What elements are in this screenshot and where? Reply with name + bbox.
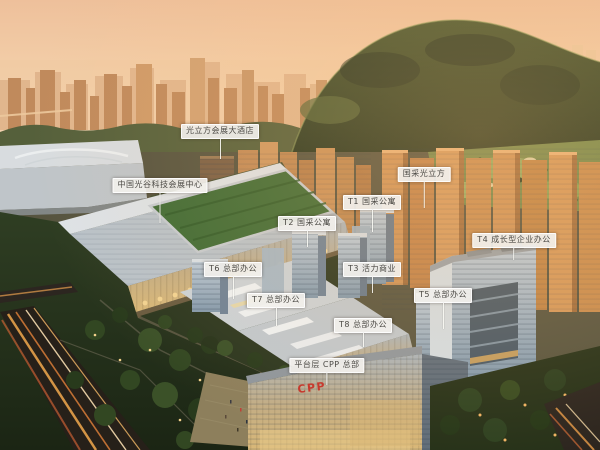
callout-hotel-line [220,139,221,159]
callout-t8: T8 总部办公 [334,318,392,347]
callout-project-name: 国采光立方 [398,167,451,208]
callout-t1-line [372,210,373,232]
callout-platform-cpp-label: 平台层 CPP 总部 [289,358,364,373]
callout-t6-line [233,277,234,299]
callout-project-name-label: 国采光立方 [398,167,451,182]
callout-t4-line [514,248,515,260]
aerial-rendering-page: CPP 光立方会展大酒店 中国光谷科技会展中心 国采光立方 T1 国采公寓 T2… [0,0,600,450]
callout-platform-cpp: 平台层 CPP 总部 [289,358,364,385]
callout-t7-label: T7 总部办公 [247,293,305,308]
callout-platform-cpp-line [326,373,327,385]
callout-t7-line [276,308,277,326]
callout-exhibition-center-label: 中国光谷科技会展中心 [113,178,208,193]
callout-t3-line [372,277,373,293]
callout-t6-label: T6 总部办公 [204,262,262,277]
callout-t4-label: T4 成长型企业办公 [472,233,556,248]
callout-t8-label: T8 总部办公 [334,318,392,333]
callout-t2: T2 国采公寓 [278,216,336,247]
callout-t8-line [363,333,364,347]
callout-t3: T3 活力商业 [343,262,401,293]
callout-t1-label: T1 国采公寓 [343,195,401,210]
callout-exhibition-center-line [160,193,161,223]
callout-t3-label: T3 活力商业 [343,262,401,277]
callout-project-name-line [424,182,425,208]
callout-t2-label: T2 国采公寓 [278,216,336,231]
callout-t5-line [443,303,444,329]
callout-t5: T5 总部办公 [414,288,472,329]
callout-t4: T4 成长型企业办公 [472,233,556,260]
callout-exhibition-center: 中国光谷科技会展中心 [113,178,208,223]
callout-t7: T7 总部办公 [247,293,305,326]
callout-t2-line [307,231,308,247]
callout-t1: T1 国采公寓 [343,195,401,232]
callout-hotel: 光立方会展大酒店 [181,124,259,159]
callout-t5-label: T5 总部办公 [414,288,472,303]
callout-hotel-label: 光立方会展大酒店 [181,124,259,139]
